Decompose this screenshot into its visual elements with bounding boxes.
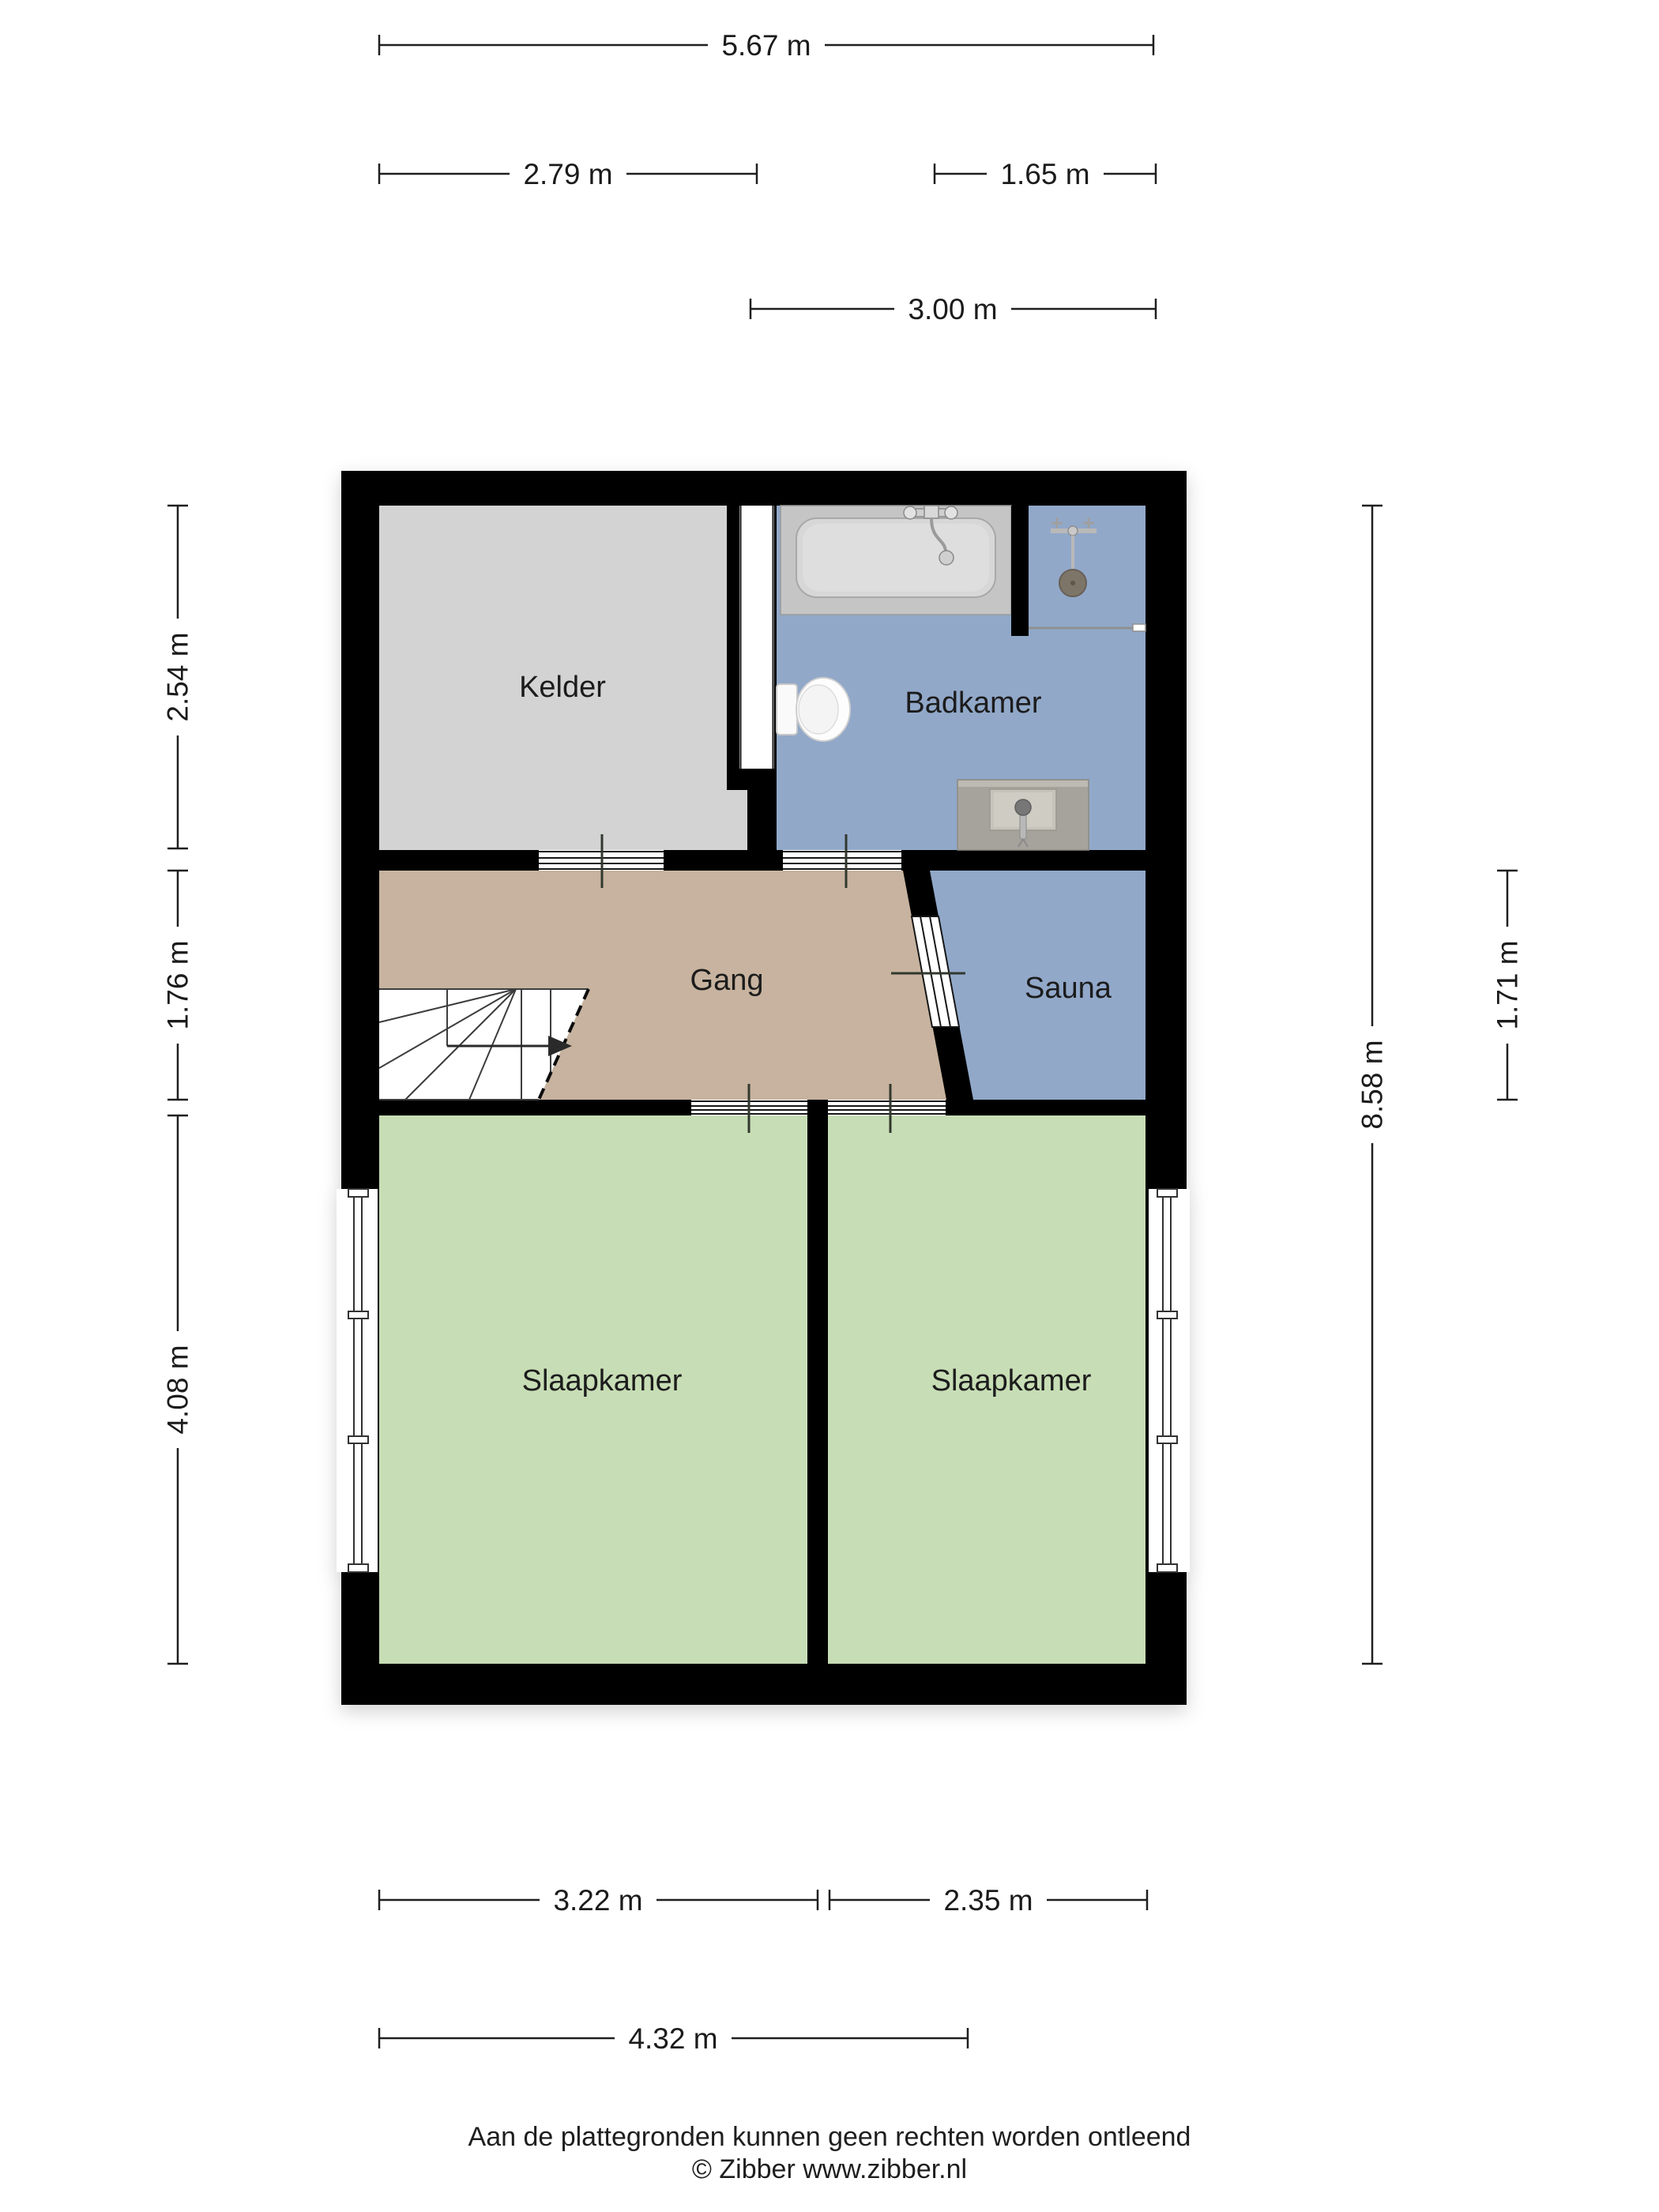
dimension-label: 1.76 m: [162, 940, 194, 1029]
dimension-label: 8.58 m: [1356, 1040, 1389, 1129]
window-right: [1149, 1189, 1190, 1572]
room-label-badkamer: Badkamer: [905, 687, 1042, 720]
dimension-label: 3.00 m: [908, 293, 997, 325]
dimension-bottom-bedroom-left: 3.22 m: [379, 1884, 818, 1917]
dimension-label: 4.08 m: [162, 1345, 194, 1434]
room-label-kelder: Kelder: [519, 671, 606, 704]
dimension-right-sauna: 1.71 m: [1492, 871, 1524, 1100]
dimension-label: 2.79 m: [523, 158, 612, 190]
footer-credit: © Zibber www.zibber.nl: [692, 2154, 967, 2184]
floorplan-canvas: Kelder Badkamer Gang Sauna Slaapkamer Sl…: [0, 0, 1659, 2212]
room-label-gang: Gang: [690, 964, 764, 997]
dimension-left-bedroom: 4.08 m: [162, 1115, 194, 1664]
floorplan: Kelder Badkamer Gang Sauna Slaapkamer Sl…: [337, 471, 1190, 1705]
kelder-badkamer-opening: [739, 506, 774, 769]
dimension-left-hall: 1.76 m: [162, 871, 194, 1100]
dimension-bottom-bedroom-right: 2.35 m: [829, 1884, 1147, 1917]
sink-icon: [957, 780, 1089, 850]
dimension-label: 3.22 m: [553, 1884, 642, 1917]
toilet-icon: [777, 678, 850, 741]
dimension-top-right: 1.65 m: [935, 158, 1156, 190]
dimension-left-cellar: 2.54 m: [162, 506, 194, 848]
dimension-right-total: 8.58 m: [1356, 506, 1389, 1664]
dimension-label: 2.54 m: [162, 632, 194, 721]
dimension-label: 2.35 m: [943, 1884, 1033, 1917]
window-left: [337, 1189, 378, 1572]
bathtub-icon: [781, 506, 1011, 615]
dimension-label: 1.65 m: [1000, 158, 1089, 190]
dimension-top-bathroom: 3.00 m: [750, 293, 1156, 325]
dimension-top-left: 2.79 m: [379, 158, 757, 190]
room-label-slaapkamer-left: Slaapkamer: [522, 1364, 683, 1398]
footer-disclaimer: Aan de plattegronden kunnen geen rechten…: [468, 2122, 1191, 2152]
dimension-top-total: 5.67 m: [379, 29, 1153, 62]
dimension-bottom-total: 4.32 m: [379, 2022, 968, 2055]
room-label-sauna: Sauna: [1025, 972, 1112, 1005]
dimension-label: 5.67 m: [721, 29, 811, 62]
dimension-label: 1.71 m: [1492, 940, 1524, 1029]
room-label-slaapkamer-right: Slaapkamer: [931, 1364, 1092, 1398]
dimension-label: 4.32 m: [628, 2022, 717, 2055]
